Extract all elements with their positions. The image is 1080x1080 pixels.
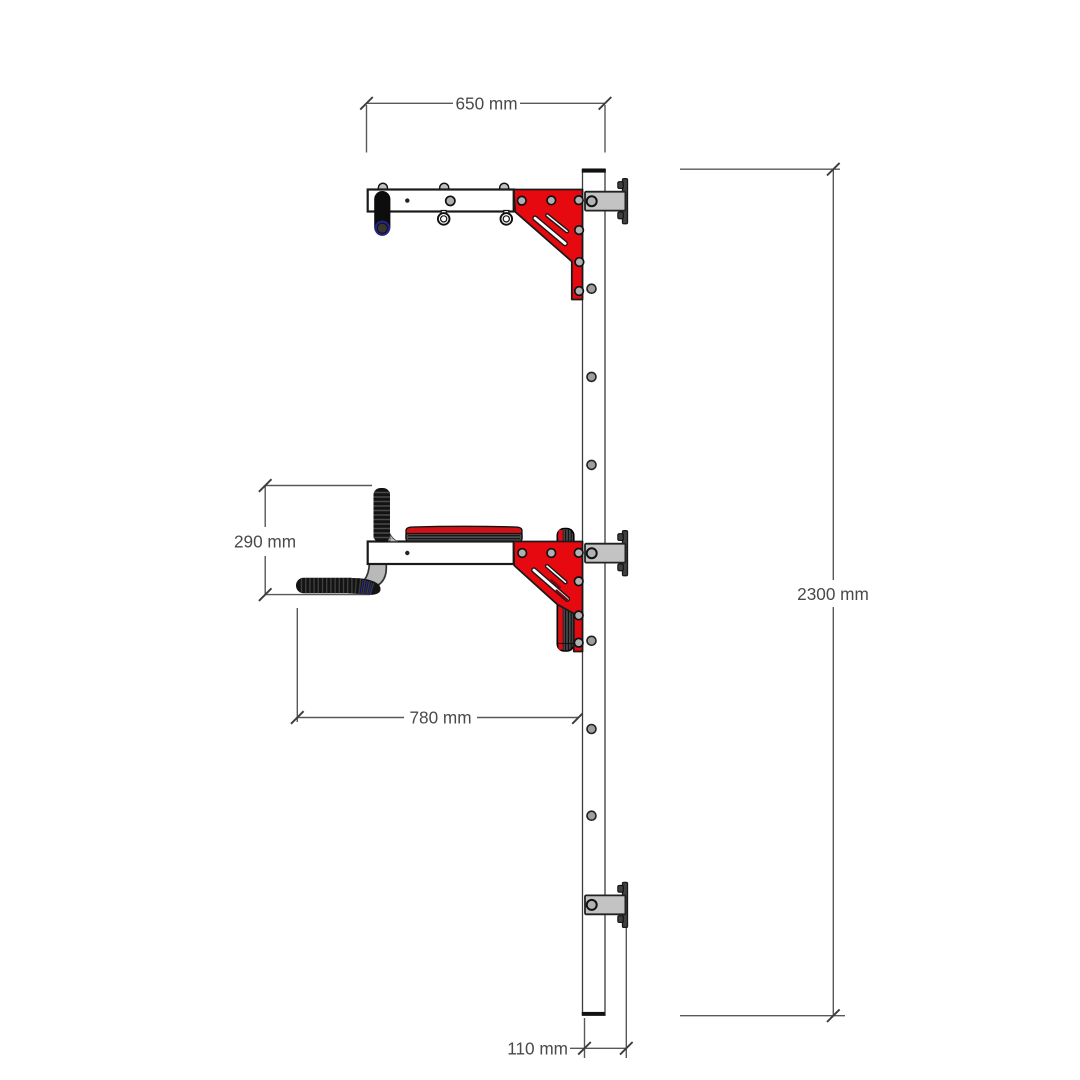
svg-text:780 mm: 780 mm — [409, 708, 471, 728]
svg-text:290 mm: 290 mm — [234, 531, 296, 551]
svg-text:650 mm: 650 mm — [455, 93, 517, 113]
svg-text:2300 mm: 2300 mm — [797, 584, 869, 604]
svg-text:110 mm: 110 mm — [507, 1038, 568, 1058]
